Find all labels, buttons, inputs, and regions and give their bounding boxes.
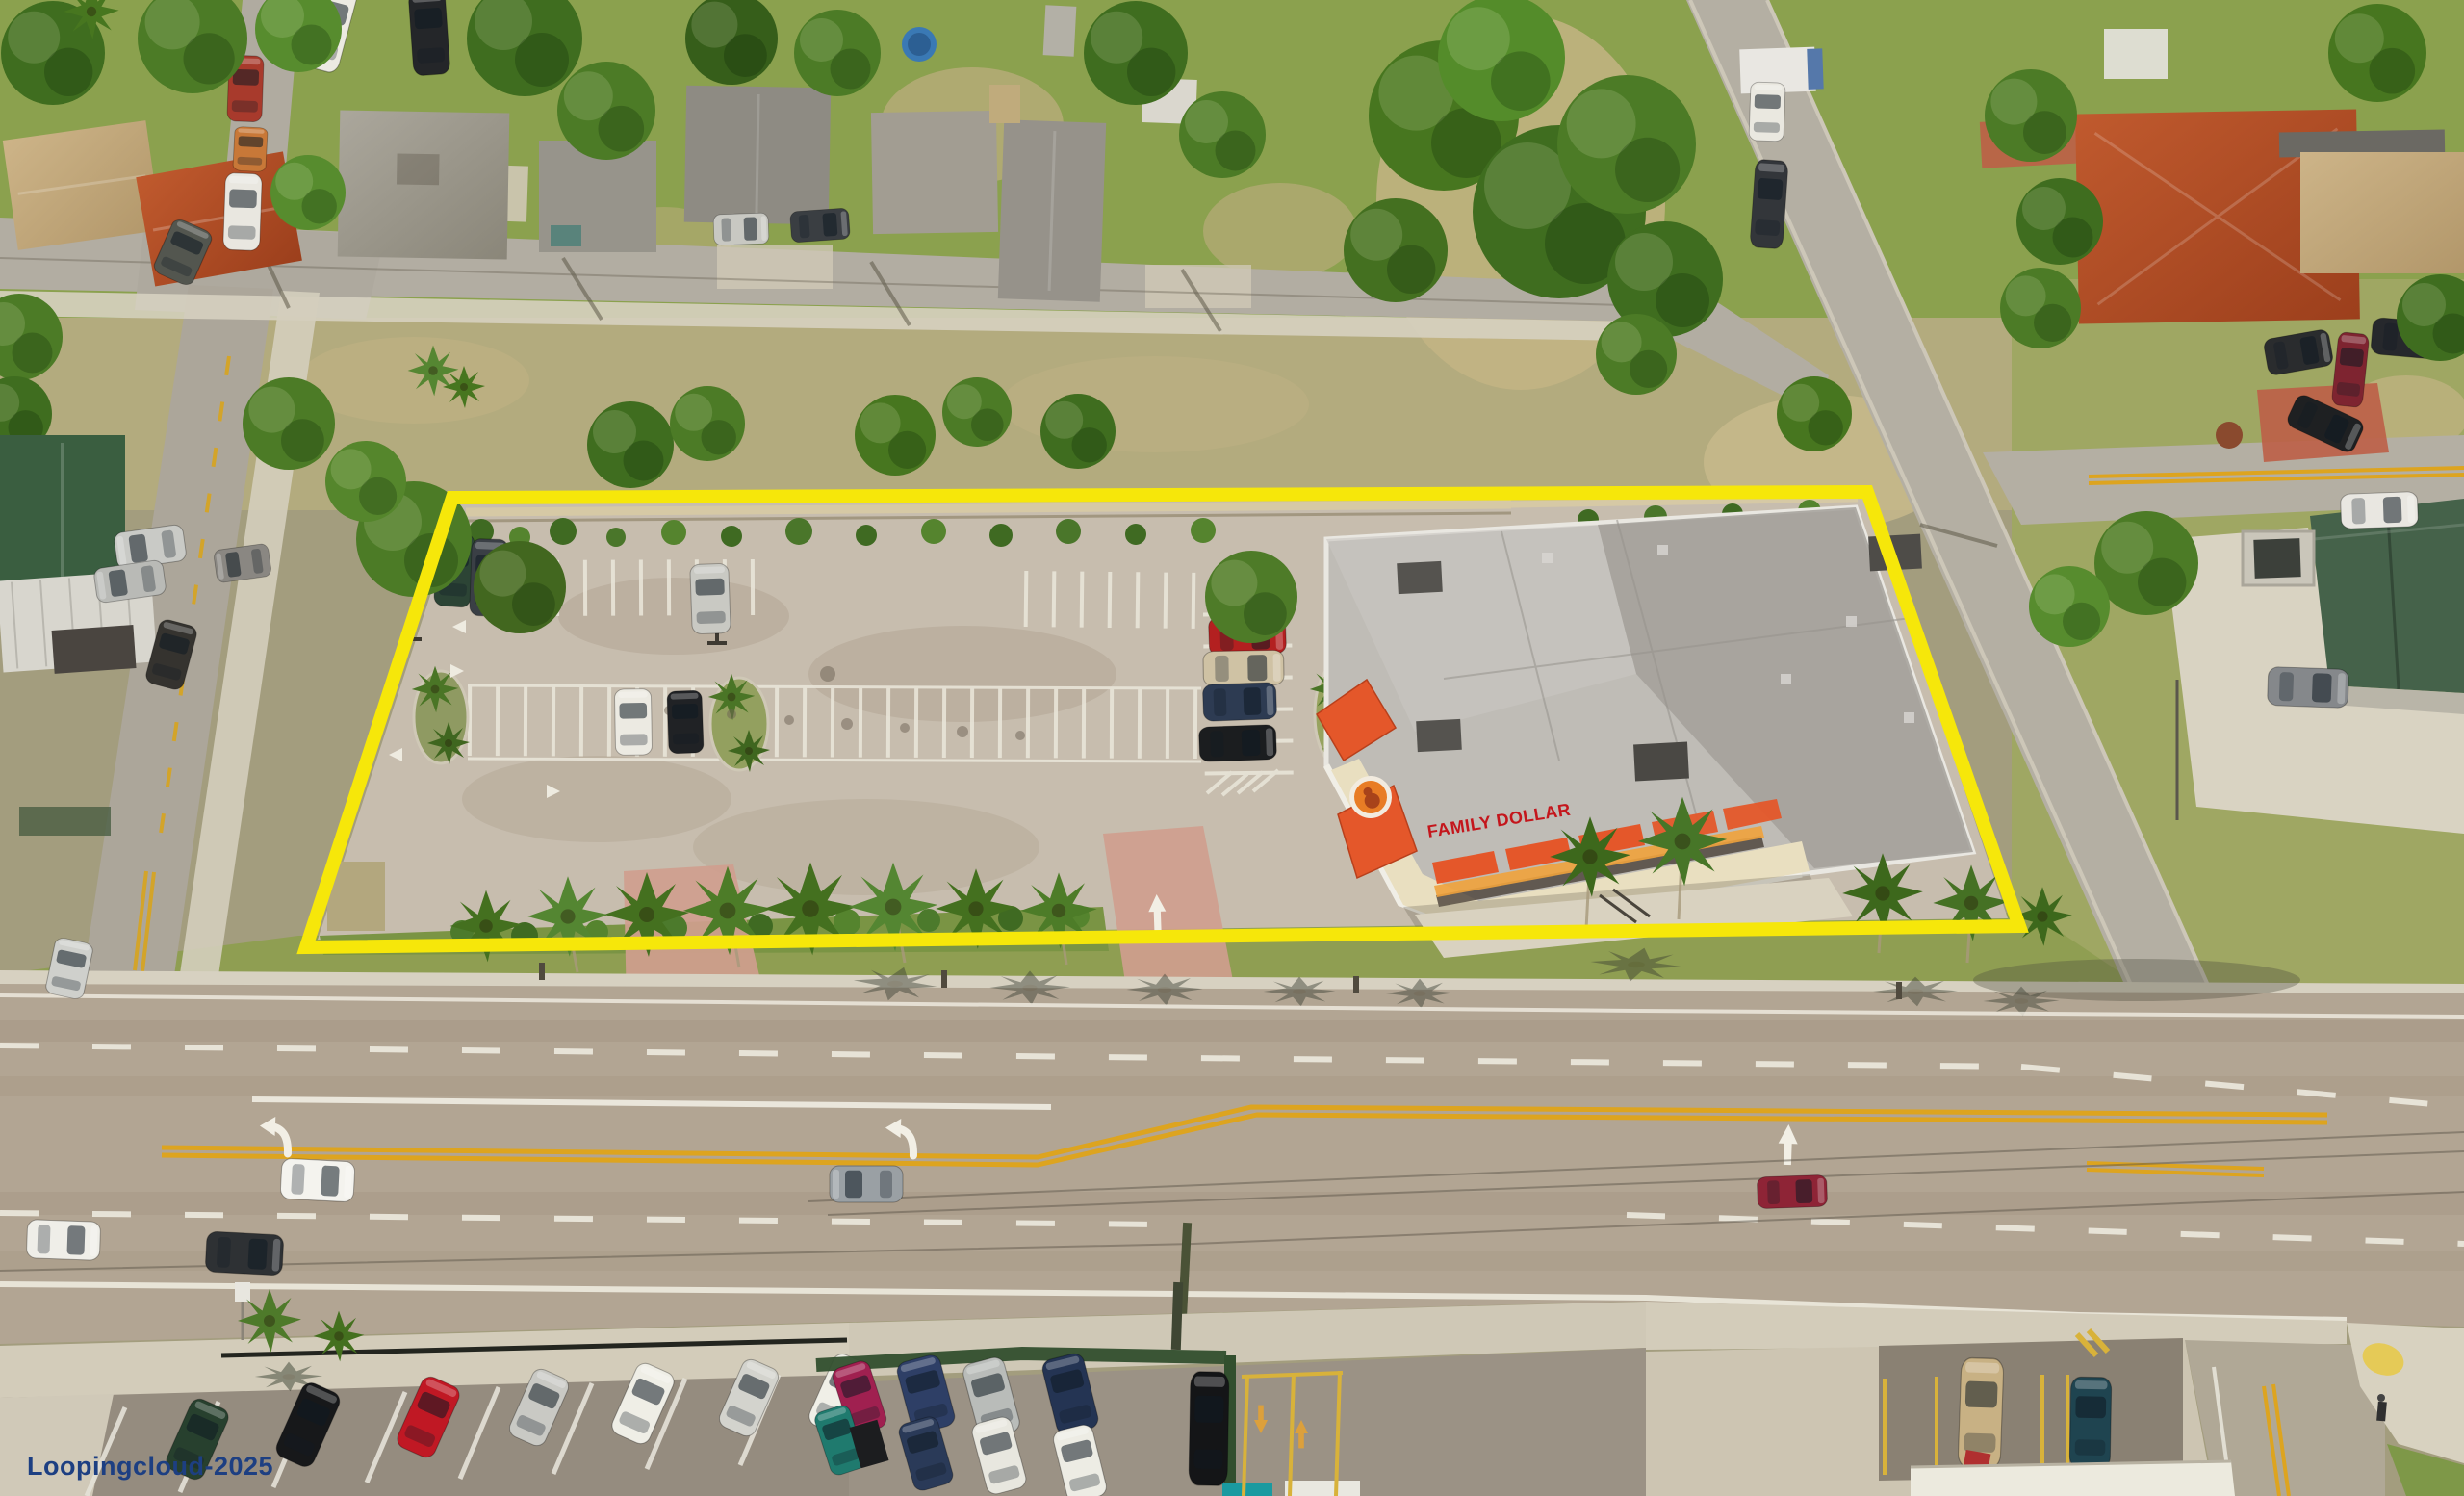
main-road <box>0 937 2464 1344</box>
scene: FAMILY DOLLAR <box>0 0 2464 1496</box>
suv <box>2268 667 2349 709</box>
gazebo <box>989 85 1020 123</box>
car <box>667 690 704 754</box>
trailer <box>2104 29 2168 79</box>
shed <box>1043 5 1077 57</box>
dumpster <box>2253 538 2300 579</box>
house <box>2300 152 2464 273</box>
pickup <box>830 1166 903 1202</box>
shipping-container <box>52 625 137 674</box>
car <box>614 688 652 755</box>
aerial-photo: FAMILY DOLLAR <box>0 0 2464 1496</box>
watermark: Loopingcloud-2025 <box>27 1452 273 1481</box>
suv <box>280 1158 355 1202</box>
suv <box>1958 1357 2004 1468</box>
trampoline <box>902 27 937 62</box>
suv <box>1189 1372 1229 1485</box>
house <box>871 111 998 234</box>
car <box>713 213 769 245</box>
car <box>205 1231 284 1276</box>
car <box>1198 725 1276 762</box>
house <box>3 120 162 250</box>
house <box>998 119 1106 302</box>
car <box>790 208 851 243</box>
car <box>1202 683 1276 722</box>
car <box>213 543 271 583</box>
car <box>2069 1377 2112 1469</box>
car <box>1203 650 1284 685</box>
van <box>223 172 263 250</box>
tree-well <box>2216 422 2243 449</box>
car <box>26 1220 100 1261</box>
van <box>1749 82 1785 142</box>
car <box>1757 1174 1827 1208</box>
suv <box>1750 159 1788 248</box>
car <box>408 0 450 76</box>
pickup <box>2340 492 2418 529</box>
car <box>233 126 268 171</box>
house <box>684 86 831 225</box>
house <box>338 110 510 259</box>
van <box>690 563 731 634</box>
